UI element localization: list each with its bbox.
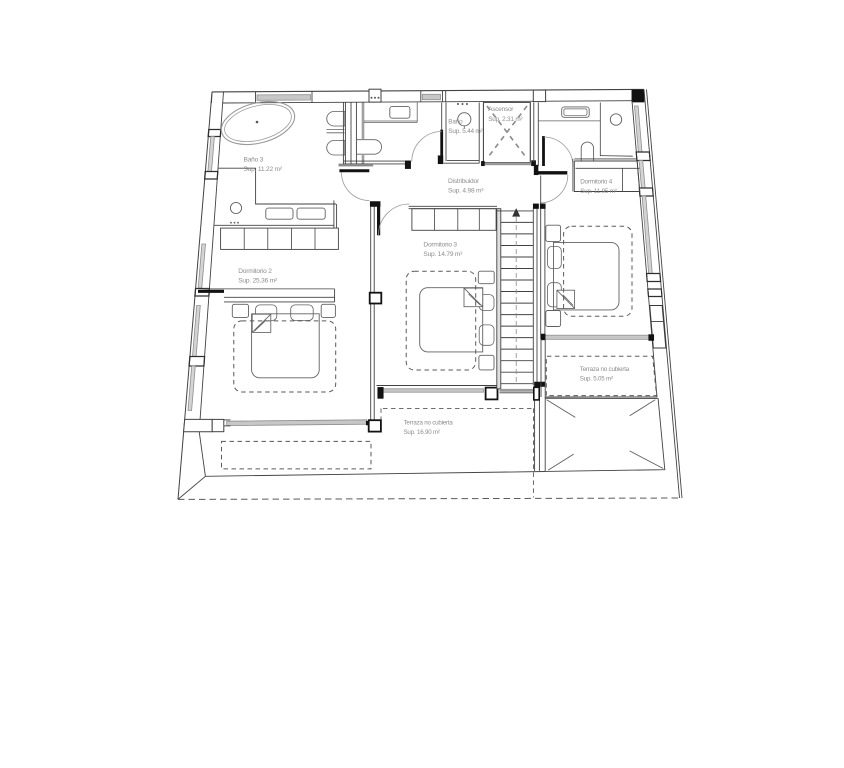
- svg-text:Baño 3: Baño 3: [244, 157, 264, 164]
- svg-text:Dormitorio 2: Dormitorio 2: [238, 268, 272, 275]
- svg-text:Sup. 5.05 m²: Sup. 5.05 m²: [580, 375, 613, 382]
- svg-text:Sup. 11.22 m²: Sup. 11.22 m²: [244, 166, 283, 173]
- svg-text:Sup. 14.79 m²: Sup. 14.79 m²: [423, 251, 463, 258]
- svg-text:Sup. 25.36 m²: Sup. 25.36 m²: [238, 277, 278, 284]
- svg-text:Dormitorio 3: Dormitorio 3: [423, 241, 457, 248]
- svg-text:Terraza no cubierta: Terraza no cubierta: [580, 366, 630, 373]
- svg-text:Sup. 16.90 m²: Sup. 16.90 m²: [404, 429, 440, 436]
- svg-text:Terraza no cubierta: Terraza no cubierta: [404, 420, 454, 427]
- svg-text:Sup. 11.95 m²: Sup. 11.95 m²: [580, 188, 617, 195]
- svg-text:Distribuidor: Distribuidor: [448, 178, 480, 185]
- svg-text:Baño: Baño: [448, 119, 463, 126]
- svg-text:Sup. 4.98 m²: Sup. 4.98 m²: [448, 188, 484, 195]
- svg-text:Sup. 2.31 m²: Sup. 2.31 m²: [488, 116, 522, 123]
- svg-text:Ascensor: Ascensor: [488, 106, 514, 113]
- svg-text:Sup. 5.44 m²: Sup. 5.44 m²: [448, 128, 482, 135]
- svg-text:Dormitorio 4: Dormitorio 4: [580, 178, 613, 185]
